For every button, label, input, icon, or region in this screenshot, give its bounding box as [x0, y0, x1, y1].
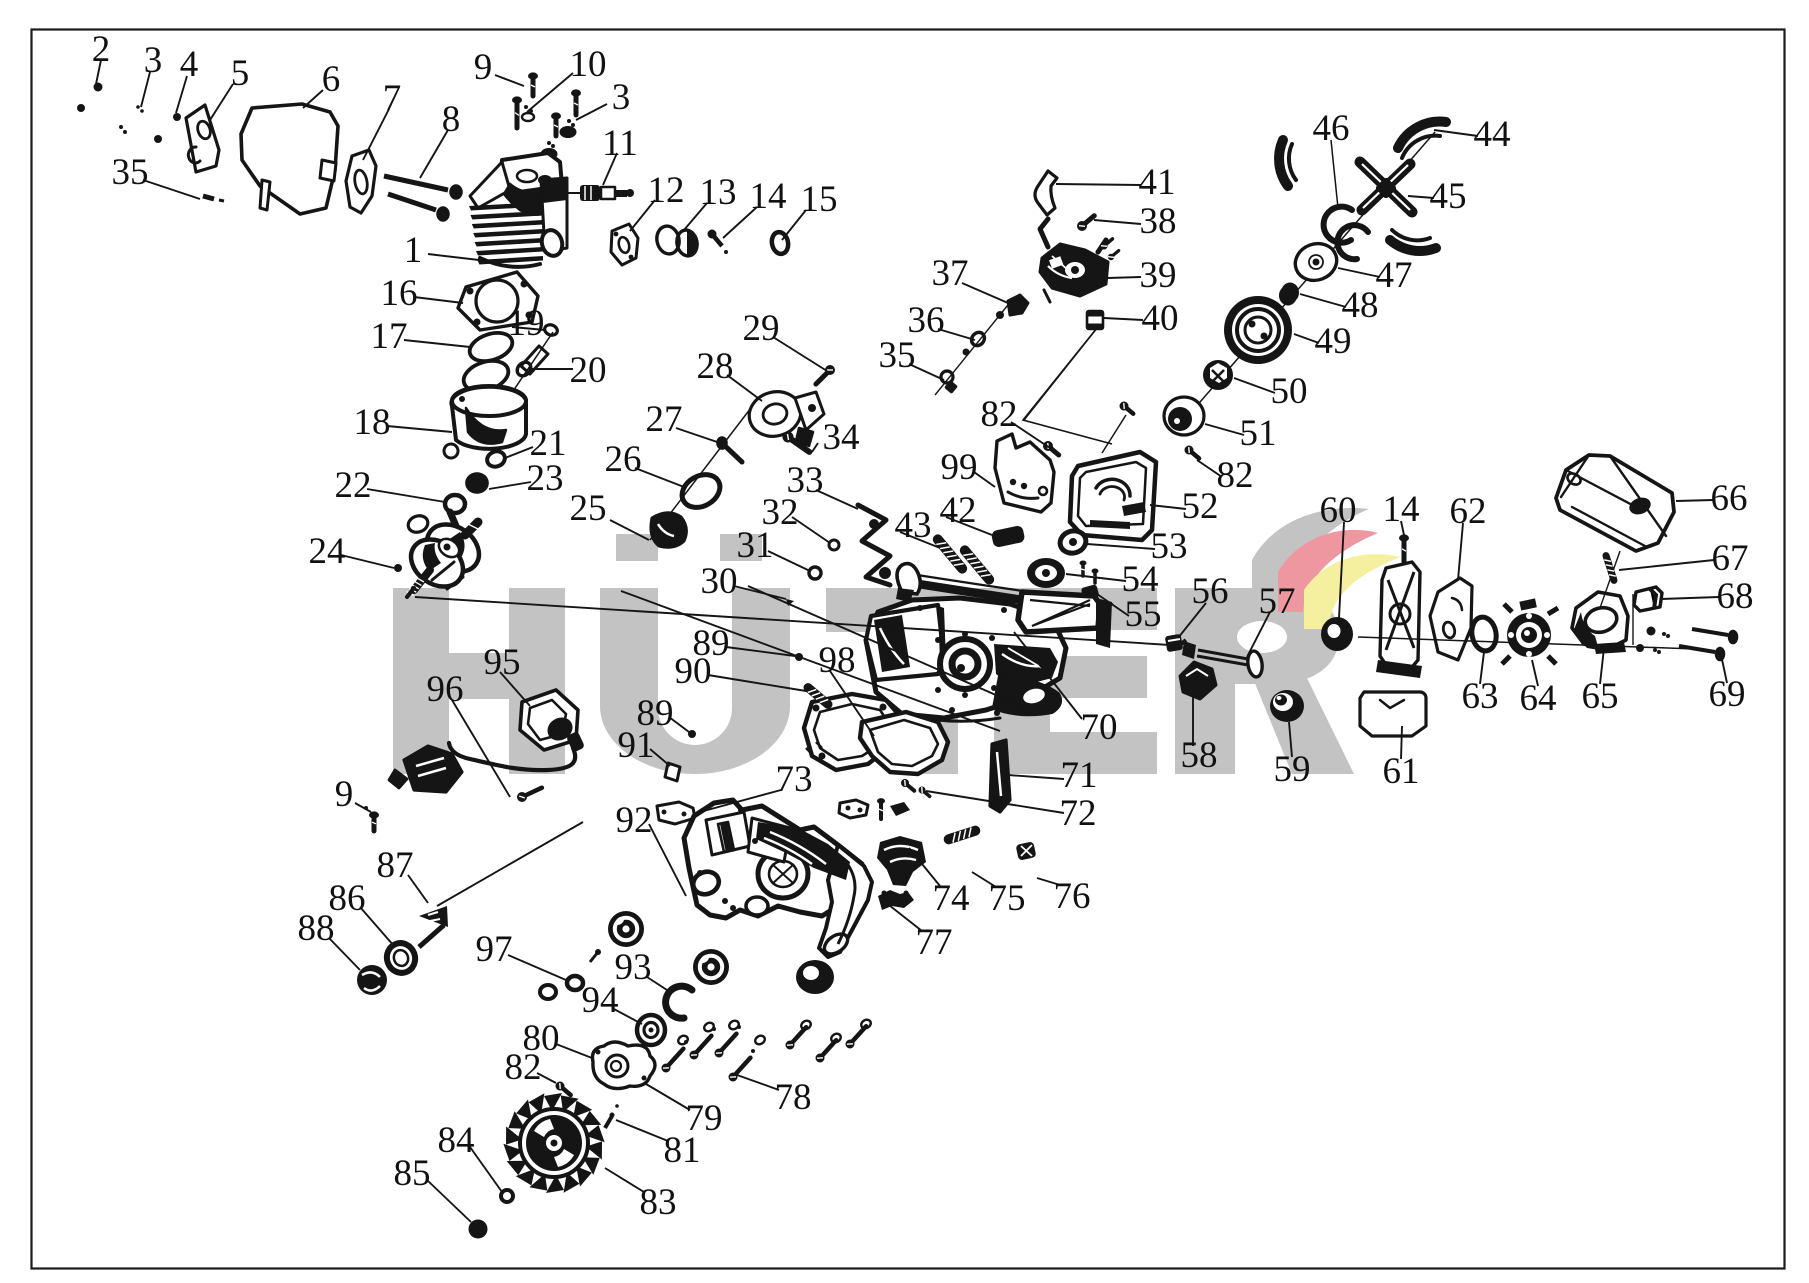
svg-text:51: 51	[1240, 413, 1277, 454]
svg-text:97: 97	[476, 929, 513, 970]
svg-text:25: 25	[570, 488, 607, 529]
svg-text:67: 67	[1712, 538, 1749, 579]
svg-text:49: 49	[1315, 321, 1352, 362]
svg-text:42: 42	[940, 490, 977, 531]
svg-text:60: 60	[1320, 490, 1357, 531]
svg-text:59: 59	[1274, 749, 1311, 790]
svg-text:39: 39	[1140, 255, 1177, 296]
svg-text:77: 77	[916, 922, 953, 963]
svg-text:27: 27	[646, 399, 683, 440]
svg-text:43: 43	[895, 505, 932, 546]
svg-text:10: 10	[570, 44, 607, 85]
svg-text:63: 63	[1462, 676, 1499, 717]
svg-text:65: 65	[1582, 676, 1619, 717]
svg-text:40: 40	[1142, 298, 1179, 339]
svg-text:35: 35	[112, 152, 149, 193]
svg-text:2: 2	[92, 29, 111, 70]
svg-text:92: 92	[616, 800, 653, 841]
svg-text:95: 95	[484, 642, 521, 683]
svg-text:98: 98	[819, 640, 856, 681]
svg-text:83: 83	[640, 1182, 677, 1223]
svg-text:52: 52	[1182, 486, 1219, 527]
svg-text:9: 9	[474, 47, 493, 88]
svg-text:50: 50	[1271, 371, 1308, 412]
svg-text:16: 16	[381, 273, 418, 314]
svg-text:70: 70	[1081, 707, 1118, 748]
svg-text:20: 20	[570, 350, 607, 391]
svg-text:76: 76	[1054, 876, 1091, 917]
svg-text:3: 3	[612, 77, 631, 118]
svg-text:19: 19	[508, 303, 545, 344]
svg-text:8: 8	[442, 99, 461, 140]
svg-text:96: 96	[427, 669, 464, 710]
svg-text:99: 99	[941, 447, 978, 488]
svg-text:35: 35	[879, 335, 916, 376]
svg-text:73: 73	[776, 759, 813, 800]
svg-text:48: 48	[1342, 285, 1379, 326]
svg-text:7: 7	[383, 78, 402, 119]
svg-text:9: 9	[335, 774, 354, 815]
svg-text:62: 62	[1450, 491, 1487, 532]
svg-text:12: 12	[648, 170, 685, 211]
svg-text:88: 88	[298, 908, 335, 949]
svg-text:13: 13	[700, 172, 737, 213]
svg-text:14: 14	[750, 176, 787, 217]
svg-text:29: 29	[743, 308, 780, 349]
svg-text:23: 23	[527, 458, 564, 499]
svg-text:24: 24	[309, 531, 346, 572]
svg-text:15: 15	[801, 179, 838, 220]
svg-text:72: 72	[1060, 793, 1097, 834]
svg-text:45: 45	[1430, 176, 1467, 217]
svg-text:84: 84	[438, 1120, 475, 1161]
svg-text:81: 81	[664, 1130, 701, 1171]
svg-text:87: 87	[377, 845, 414, 886]
svg-text:55: 55	[1125, 594, 1162, 635]
svg-text:82: 82	[1217, 455, 1254, 496]
svg-text:61: 61	[1383, 751, 1420, 792]
svg-text:26: 26	[605, 439, 642, 480]
svg-text:71: 71	[1061, 755, 1098, 796]
svg-text:58: 58	[1181, 735, 1218, 776]
svg-text:56: 56	[1192, 571, 1229, 612]
svg-text:47: 47	[1376, 255, 1413, 296]
svg-text:38: 38	[1140, 201, 1177, 242]
svg-text:46: 46	[1313, 108, 1350, 149]
svg-text:93: 93	[615, 947, 652, 988]
svg-text:78: 78	[775, 1077, 812, 1118]
svg-text:85: 85	[394, 1153, 431, 1194]
svg-text:1: 1	[404, 230, 423, 271]
svg-text:17: 17	[371, 316, 408, 357]
svg-text:69: 69	[1709, 674, 1746, 715]
svg-text:44: 44	[1474, 114, 1511, 155]
svg-text:5: 5	[231, 53, 250, 94]
svg-text:75: 75	[989, 878, 1026, 919]
svg-text:3: 3	[144, 40, 163, 81]
svg-text:28: 28	[697, 346, 734, 387]
svg-text:14: 14	[1383, 489, 1420, 530]
svg-text:18: 18	[354, 402, 391, 443]
svg-text:66: 66	[1711, 478, 1748, 519]
svg-text:82: 82	[981, 394, 1018, 435]
svg-text:74: 74	[933, 878, 970, 919]
svg-text:4: 4	[180, 44, 199, 85]
svg-text:90: 90	[675, 651, 712, 692]
svg-text:82: 82	[505, 1047, 542, 1088]
svg-text:11: 11	[602, 123, 638, 164]
svg-text:94: 94	[582, 980, 619, 1021]
svg-text:6: 6	[322, 59, 341, 100]
svg-text:64: 64	[1520, 678, 1557, 719]
svg-text:57: 57	[1259, 581, 1296, 622]
svg-text:30: 30	[701, 561, 738, 602]
svg-text:34: 34	[823, 417, 860, 458]
svg-text:22: 22	[335, 465, 372, 506]
svg-text:41: 41	[1139, 162, 1176, 203]
svg-text:91: 91	[618, 725, 655, 766]
svg-text:68: 68	[1717, 576, 1754, 617]
svg-text:37: 37	[932, 253, 969, 294]
svg-text:31: 31	[737, 525, 774, 566]
